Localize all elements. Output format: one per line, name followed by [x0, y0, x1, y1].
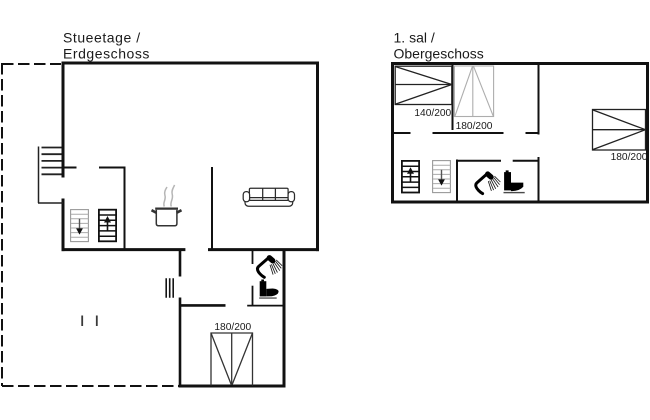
svg-text:180/200: 180/200 — [611, 152, 648, 163]
svg-text:Stueetage /: Stueetage / — [63, 29, 141, 45]
svg-text:140/200: 140/200 — [414, 108, 451, 119]
svg-text:180/200: 180/200 — [456, 121, 493, 132]
svg-text:Erdgeschoss: Erdgeschoss — [63, 46, 150, 62]
svg-text:Obergeschoss: Obergeschoss — [394, 46, 484, 62]
svg-text:180/200: 180/200 — [214, 322, 251, 333]
svg-text:1. sal /: 1. sal / — [394, 29, 435, 45]
